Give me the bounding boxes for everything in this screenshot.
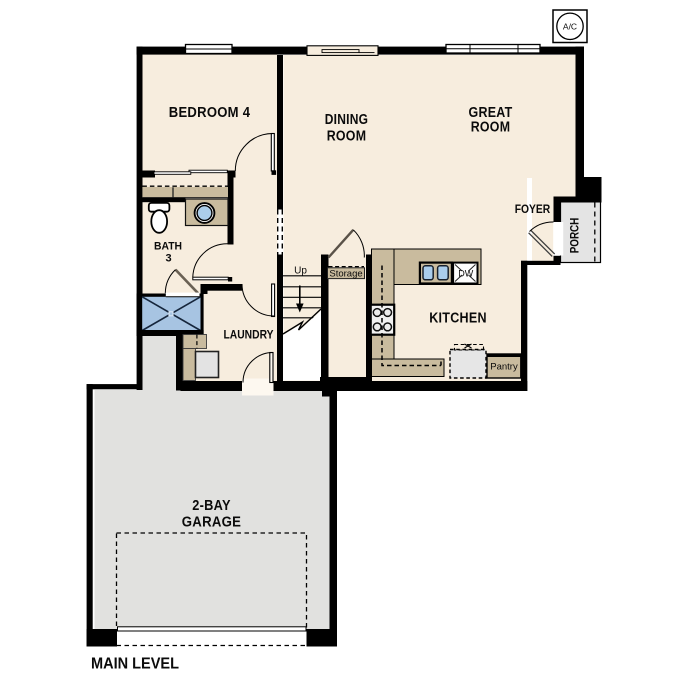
svg-text:2-BAY: 2-BAY <box>192 498 231 514</box>
svg-text:KITCHEN: KITCHEN <box>429 311 487 327</box>
svg-text:FOYER: FOYER <box>515 202 551 216</box>
svg-text:Storage: Storage <box>329 269 362 280</box>
svg-text:A/C: A/C <box>563 21 577 31</box>
svg-text:BEDROOM 4: BEDROOM 4 <box>169 105 251 121</box>
svg-text:BATH: BATH <box>154 241 182 253</box>
svg-text:DW: DW <box>458 269 473 279</box>
svg-text:GARAGE: GARAGE <box>182 515 242 531</box>
svg-text:DINING: DINING <box>325 112 369 128</box>
svg-text:MAIN LEVEL: MAIN LEVEL <box>91 656 179 673</box>
svg-text:ROOM: ROOM <box>471 120 511 136</box>
svg-text:PORCH: PORCH <box>570 218 582 254</box>
svg-text:LAUNDRY: LAUNDRY <box>224 330 274 342</box>
svg-text:GREAT: GREAT <box>469 105 513 121</box>
svg-text:Up: Up <box>294 266 307 277</box>
svg-text:3: 3 <box>165 253 171 265</box>
svg-text:ROOM: ROOM <box>327 128 367 144</box>
svg-text:Pantry: Pantry <box>490 362 518 373</box>
